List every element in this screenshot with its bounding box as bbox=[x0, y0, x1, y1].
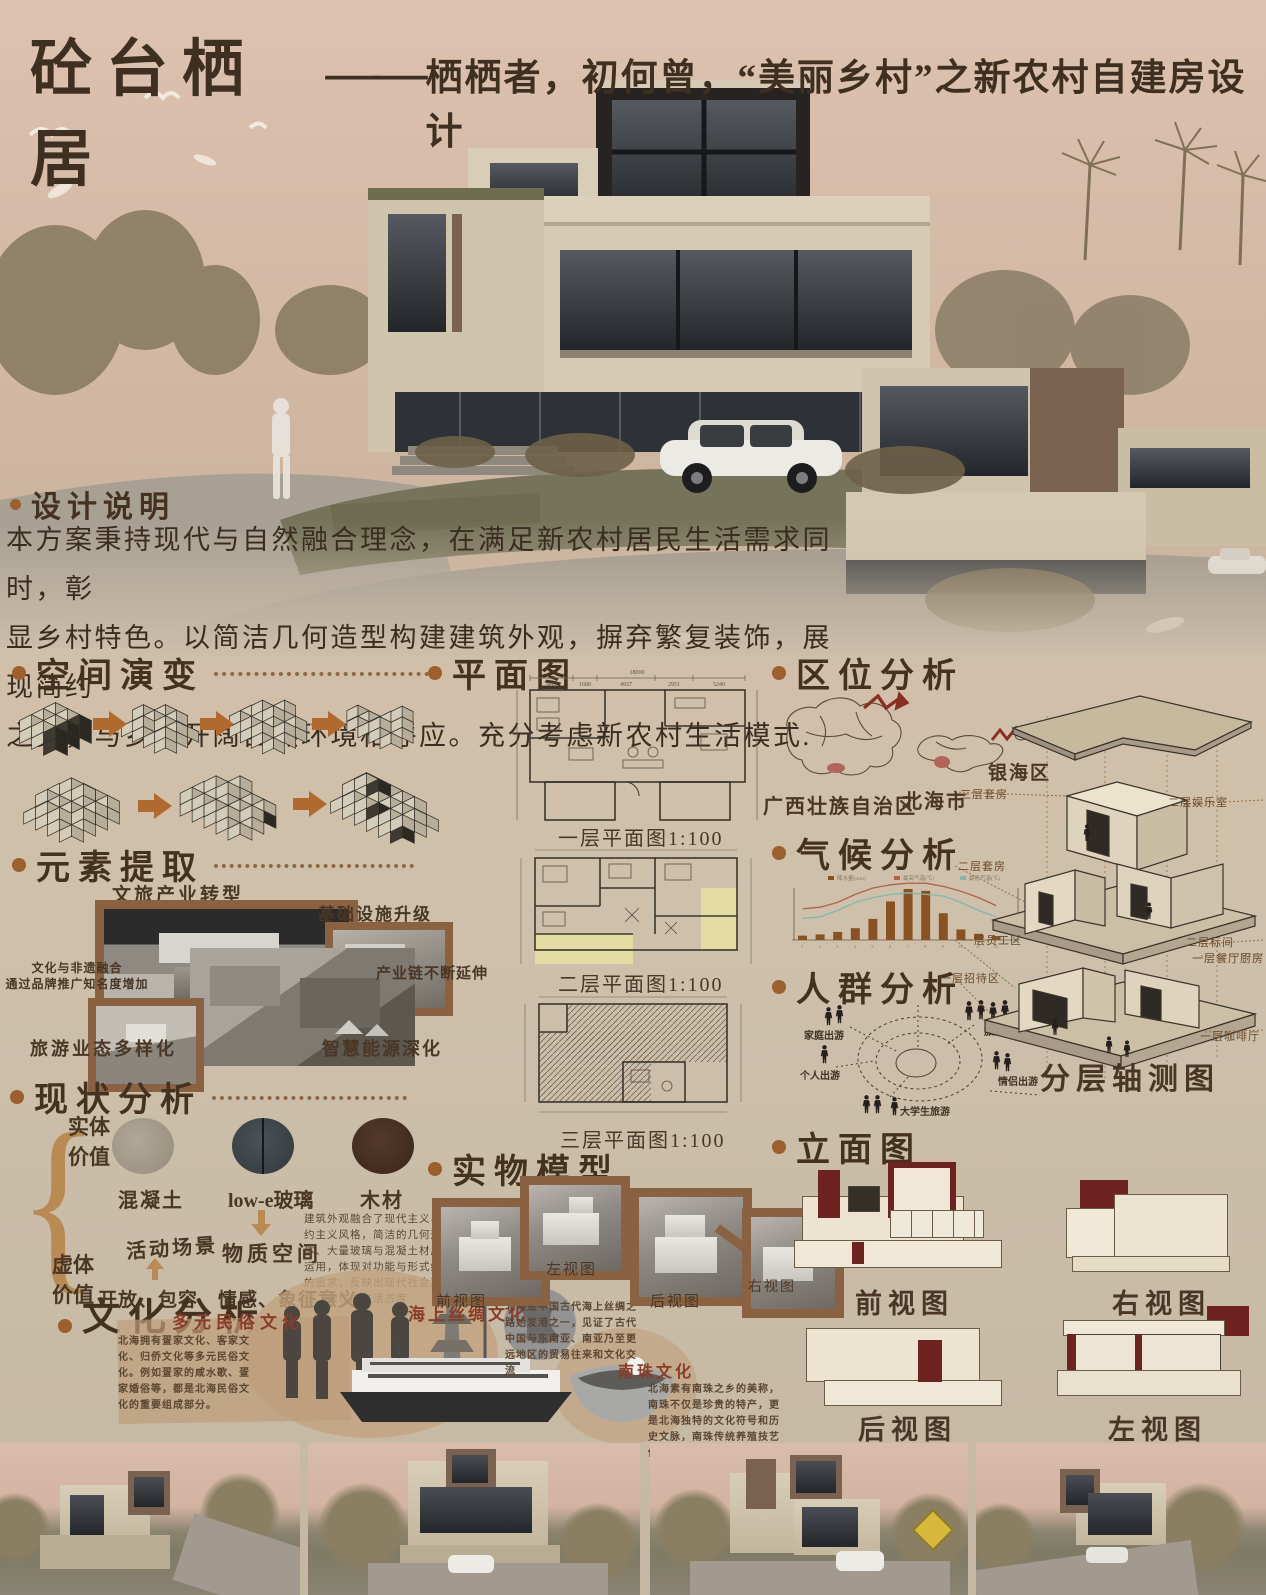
axon-label-2f-suite: 二层套房 bbox=[958, 858, 1006, 874]
axon-label-1f-kitchen: 一层餐厅厨房 bbox=[1192, 950, 1264, 966]
floor-plan-2 bbox=[505, 846, 770, 976]
model-label-back: 后视图 bbox=[650, 1290, 701, 1311]
model-label-left: 左视图 bbox=[546, 1258, 597, 1279]
axon-label-2f-rec-room: 二层娱乐室 bbox=[1168, 794, 1228, 810]
material-label-concrete: 混凝土 bbox=[118, 1184, 184, 1213]
bullet-icon bbox=[12, 858, 26, 872]
svg-text:9: 9 bbox=[942, 944, 945, 949]
axon-label-1f-cafe: 一层咖啡厅 bbox=[1200, 1028, 1260, 1044]
render-thumbnail-4 bbox=[976, 1443, 1266, 1595]
svg-text:大学生旅游: 大学生旅游 bbox=[900, 1105, 950, 1118]
elevation-left bbox=[1055, 1306, 1250, 1406]
status-solid-label: 实体价值 bbox=[68, 1112, 114, 1172]
model-photo-back bbox=[630, 1188, 752, 1306]
elements-tourism-label: 旅游业态多样化 bbox=[30, 1035, 177, 1061]
elements-fusion-note: 文化与非遗融合 通过品牌推广知名度增加 bbox=[2, 960, 152, 992]
bullet-icon bbox=[772, 846, 786, 860]
svg-text:2951: 2951 bbox=[668, 682, 680, 688]
svg-text:8: 8 bbox=[924, 944, 927, 949]
bullet-icon bbox=[772, 666, 786, 680]
render-thumbnail-3 bbox=[650, 1443, 968, 1595]
culture-item-1-text: 北海拥有疍家文化、客家文化、归侨文化等多元民俗文化。例如疍家的咸水歌、疍家婚俗等… bbox=[118, 1334, 258, 1414]
axon-caption: 分层轴测图 bbox=[1040, 1054, 1220, 1098]
svg-text:3: 3 bbox=[836, 944, 839, 949]
render-thumbnail-2 bbox=[308, 1443, 640, 1595]
bullet-icon bbox=[428, 666, 442, 680]
svg-text:1680: 1680 bbox=[579, 682, 591, 688]
svg-text:5: 5 bbox=[871, 944, 874, 949]
elements-energy-label: 智慧能源深化 bbox=[322, 1035, 442, 1061]
elevation-back-label: 后视图 bbox=[858, 1408, 957, 1447]
elevation-back bbox=[790, 1312, 1025, 1412]
material-label-wood: 木材 bbox=[360, 1184, 404, 1213]
svg-text:最高气温(℃): 最高气温(℃) bbox=[903, 874, 934, 882]
svg-text:18000: 18000 bbox=[630, 670, 645, 676]
axon-label-2f-std-room: 二层标间 bbox=[1186, 934, 1234, 950]
status-activity: 活动场景 bbox=[125, 1229, 219, 1264]
material-swatch-wood bbox=[352, 1118, 414, 1174]
svg-text:4: 4 bbox=[854, 944, 857, 949]
svg-text:家庭出游: 家庭出游 bbox=[804, 1029, 844, 1042]
model-label-right: 右视图 bbox=[748, 1276, 796, 1296]
floor-plan-2-label: 二层平面图1:100 bbox=[558, 968, 724, 997]
page-title: 砼台栖居 bbox=[30, 18, 321, 198]
dotted-divider bbox=[214, 862, 414, 868]
bullet-icon bbox=[58, 1319, 72, 1333]
elements-chain-label: 产业链不断延伸 bbox=[376, 962, 488, 983]
svg-text:6: 6 bbox=[889, 944, 892, 949]
svg-text:2: 2 bbox=[818, 944, 820, 949]
culture-item-3-title: 南珠文化 bbox=[618, 1358, 694, 1382]
render-thumbnail-1 bbox=[0, 1443, 300, 1595]
elevation-right bbox=[1058, 1172, 1243, 1272]
poster-board: 砼台栖居 —— 栖栖者，初何曾，“美丽乡村”之新农村自建房设计 设计说明 本方案… bbox=[0, 0, 1266, 1595]
arrow-down-icon bbox=[258, 1210, 265, 1224]
svg-text:降水量(mm): 降水量(mm) bbox=[837, 874, 866, 882]
bullet-icon bbox=[428, 1162, 442, 1176]
floor-plan-1: 18000 3412 1680 4937 2951 5249 bbox=[505, 668, 770, 828]
dotted-divider bbox=[212, 1094, 407, 1100]
arrow-down-head bbox=[251, 1224, 271, 1236]
evolution-arrows bbox=[0, 640, 460, 860]
bullet-icon bbox=[772, 1140, 786, 1154]
svg-text:3412: 3412 bbox=[545, 682, 557, 688]
bullet-icon bbox=[10, 499, 21, 510]
svg-text:4937: 4937 bbox=[620, 682, 632, 688]
svg-text:5249: 5249 bbox=[713, 682, 725, 688]
title-dash: —— bbox=[325, 41, 421, 103]
axon-label-1f-staff: 一层员工区 bbox=[962, 932, 1022, 948]
svg-text:个人出游: 个人出游 bbox=[799, 1069, 840, 1082]
culture-item-1-title: 多元民俗文化 bbox=[172, 1308, 304, 1333]
material-label-glass: low-e玻璃 bbox=[228, 1184, 314, 1213]
svg-text:1: 1 bbox=[801, 944, 803, 949]
poster-title-row: 砼台栖居 —— 栖栖者，初何曾，“美丽乡村”之新农村自建房设计 bbox=[30, 18, 1250, 198]
location-label-guangxi: 广西壮族自治区 bbox=[763, 790, 917, 819]
poster-subtitle: 栖栖者，初何曾，“美丽乡村”之新农村自建房设计 bbox=[425, 47, 1250, 155]
axon-label-1f-reception: 一层招待区 bbox=[940, 970, 1000, 986]
elevation-left-label: 左视图 bbox=[1108, 1408, 1207, 1447]
model-label-front: 前视图 bbox=[436, 1290, 487, 1311]
axon-label-3f-suite: 三层套房 bbox=[960, 786, 1008, 802]
material-swatch-concrete bbox=[112, 1118, 174, 1174]
bullet-icon bbox=[772, 980, 786, 994]
elevation-front bbox=[790, 1158, 1025, 1276]
svg-text:7: 7 bbox=[906, 944, 909, 949]
floor-plan-3 bbox=[505, 994, 770, 1122]
material-swatch-glass bbox=[232, 1118, 294, 1174]
